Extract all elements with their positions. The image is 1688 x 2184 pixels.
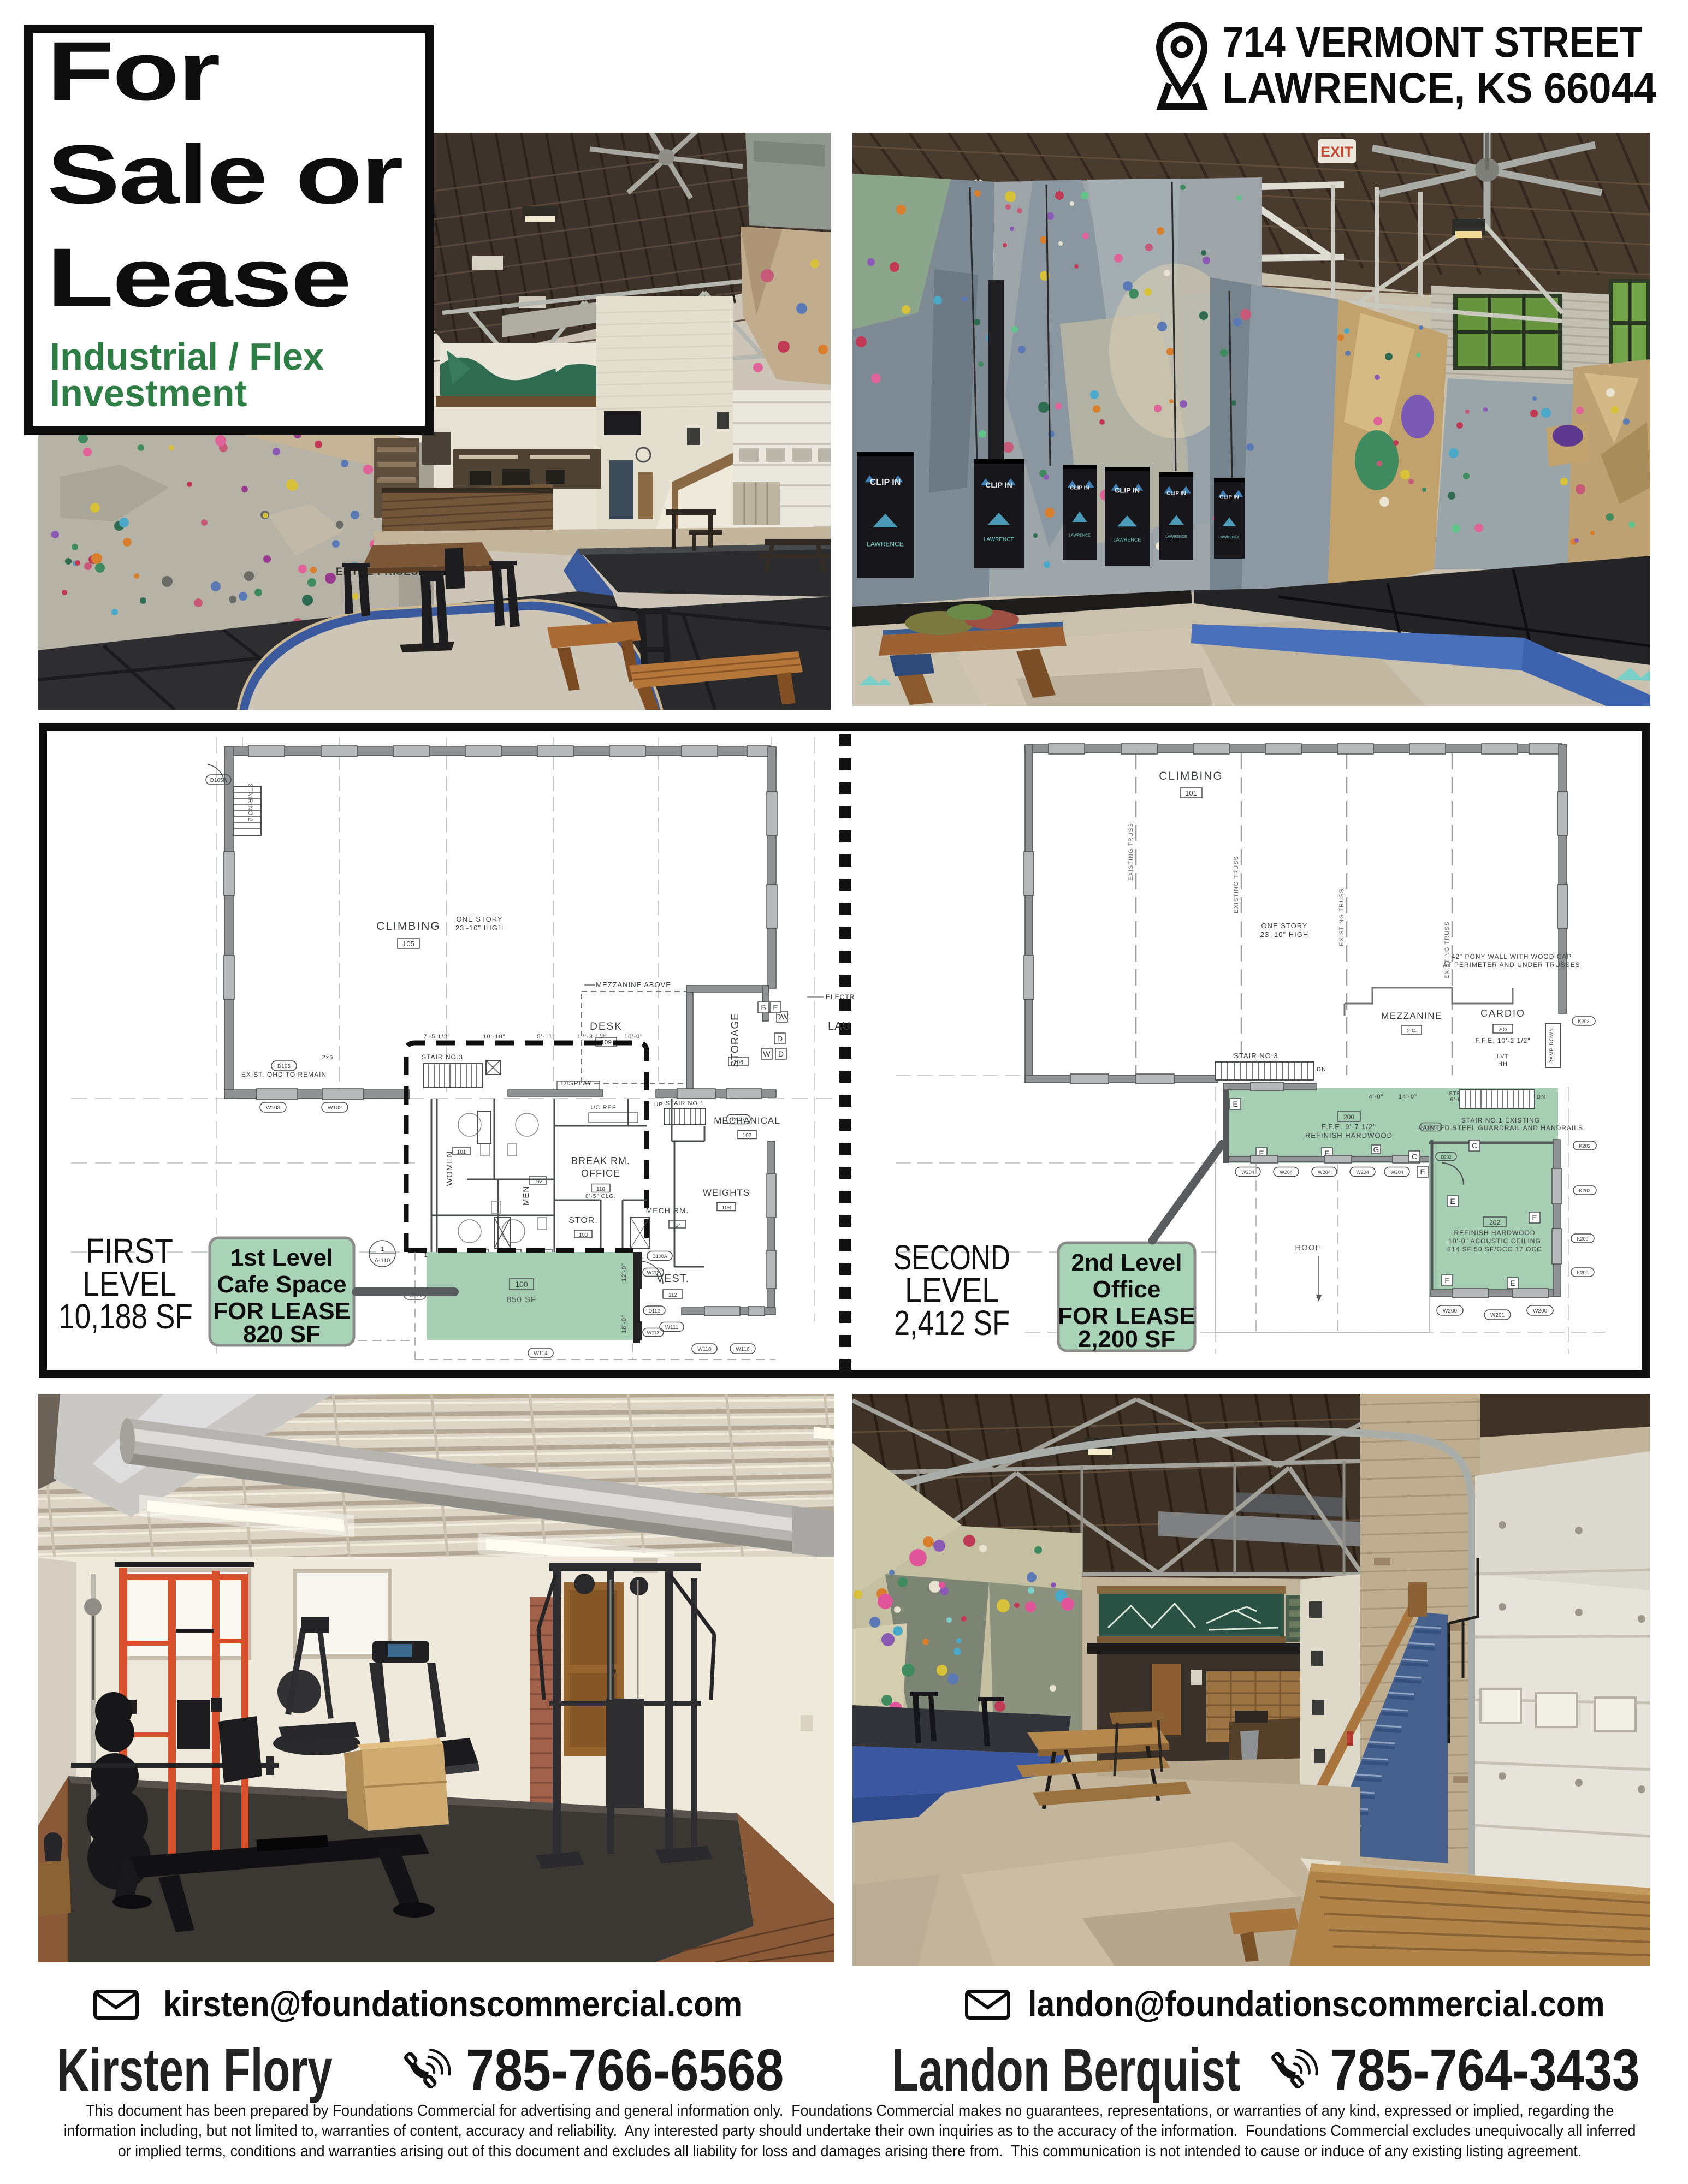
svg-text:MEZZANINE: MEZZANINE [1381, 1011, 1442, 1021]
svg-text:ONE STORY: ONE STORY [1261, 922, 1307, 930]
svg-text:10,188 SF: 10,188 SF [58, 1297, 193, 1336]
svg-text:100: 100 [515, 1280, 528, 1289]
svg-text:200: 200 [1343, 1113, 1354, 1121]
svg-text:W102: W102 [328, 1105, 342, 1111]
svg-text:W204: W204 [1241, 1170, 1254, 1175]
svg-text:REFINISH HARDWOOD: REFINISH HARDWOOD [1305, 1131, 1393, 1140]
svg-text:101: 101 [457, 1149, 466, 1155]
svg-text:EXIT: EXIT [1320, 144, 1354, 160]
svg-text:WOMEN: WOMEN [445, 1151, 454, 1186]
svg-text:HH: HH [1498, 1061, 1508, 1067]
svg-text:D205: D205 [1425, 1125, 1437, 1130]
svg-text:E: E [1420, 1167, 1425, 1176]
svg-text:CLIP IN: CLIP IN [1166, 491, 1186, 497]
svg-text:W204: W204 [1318, 1170, 1331, 1175]
svg-text:10'-0" ACOUSTIC CEILING: 10'-0" ACOUSTIC CEILING [1448, 1237, 1541, 1245]
svg-text:K202: K202 [1579, 1188, 1590, 1194]
svg-text:WEIGHTS: WEIGHTS [703, 1188, 750, 1198]
svg-text:101: 101 [1185, 789, 1197, 797]
svg-text:850 SF: 850 SF [507, 1295, 536, 1304]
svg-text:B: B [761, 1003, 766, 1012]
svg-text:42" PONY WALL WITH WOOD CAP: 42" PONY WALL WITH WOOD CAP [1452, 953, 1572, 960]
svg-text:LAWRENCE: LAWRENCE [1165, 535, 1187, 539]
svg-text:PAINTED STEEL GUARDRAIL AND HA: PAINTED STEEL GUARDRAIL AND HANDRAILS [1418, 1124, 1583, 1132]
svg-text:202: 202 [1489, 1219, 1500, 1226]
svg-text:1st Level: 1st Level [230, 1244, 333, 1271]
svg-text:2,412 SF: 2,412 SF [894, 1303, 1010, 1343]
svg-text:CLIP IN: CLIP IN [985, 480, 1012, 489]
svg-text:D: D [778, 1049, 784, 1058]
svg-text:W110: W110 [736, 1346, 750, 1352]
svg-text:W112: W112 [647, 1270, 660, 1275]
svg-text:W: W [763, 1049, 771, 1058]
svg-text:MEZZANINE ABOVE: MEZZANINE ABOVE [596, 981, 671, 989]
svg-text:E: E [1233, 1100, 1237, 1108]
svg-text:E: E [1444, 1276, 1449, 1285]
svg-text:MECH RM.: MECH RM. [646, 1206, 689, 1215]
svg-text:106: 106 [733, 1059, 743, 1066]
svg-text:CLIMBING: CLIMBING [1159, 770, 1223, 782]
svg-text:103: 103 [579, 1232, 588, 1238]
svg-text:LAWRENCE: LAWRENCE [867, 541, 904, 548]
svg-text:F.F.E. 10'-2 1/2": F.F.E. 10'-2 1/2" [1476, 1037, 1531, 1044]
svg-text:UP: UP [654, 1102, 663, 1108]
svg-text:RAMP DOWN: RAMP DOWN [1549, 1028, 1554, 1064]
svg-text:EXISTING TRUSS: EXISTING TRUSS [1233, 856, 1240, 913]
svg-text:W201: W201 [1490, 1313, 1505, 1319]
svg-text:EXISTING TRUSS: EXISTING TRUSS [1128, 823, 1134, 880]
svg-text:ONE STORY: ONE STORY [456, 915, 502, 923]
svg-text:8'-5" CLG.: 8'-5" CLG. [585, 1194, 616, 1200]
svg-text:STOR.: STOR. [568, 1216, 598, 1225]
svg-text:W204: W204 [1356, 1170, 1369, 1175]
svg-text:D202: D202 [1441, 1155, 1452, 1160]
svg-text:AT PERIMETER AND UNDER TRUSSES: AT PERIMETER AND UNDER TRUSSES [1443, 961, 1580, 969]
svg-text:W103: W103 [266, 1105, 281, 1111]
svg-text:105: 105 [402, 940, 414, 948]
svg-text:10'-0": 10'-0" [624, 1034, 643, 1040]
svg-text:EXIST. OHD TO REMAIN: EXIST. OHD TO REMAIN [241, 1071, 327, 1078]
svg-text:W204: W204 [1390, 1170, 1403, 1175]
svg-text:OFFICE: OFFICE [581, 1168, 620, 1179]
svg-text:CLIP IN: CLIP IN [1219, 494, 1239, 500]
svg-text:E: E [1532, 1213, 1537, 1222]
svg-text:W114: W114 [534, 1351, 548, 1357]
svg-text:CARDIO: CARDIO [1480, 1008, 1525, 1019]
svg-text:107: 107 [743, 1133, 752, 1139]
svg-text:204: 204 [1407, 1028, 1417, 1034]
svg-text:D100A: D100A [652, 1254, 667, 1259]
svg-text:LAU: LAU [828, 1020, 851, 1032]
svg-text:12'-9": 12'-9" [621, 1263, 627, 1281]
svg-text:LAWRENCE: LAWRENCE [1218, 536, 1240, 539]
svg-text:ROOF: ROOF [1295, 1243, 1320, 1253]
svg-text:W204: W204 [1280, 1170, 1293, 1175]
svg-text:2,200 SF: 2,200 SF [1078, 1326, 1176, 1352]
svg-text:W111: W111 [665, 1325, 679, 1331]
svg-text:BREAK RM.: BREAK RM. [571, 1155, 630, 1166]
svg-text:814 SF 50 SF/OCC 17 OCC: 814 SF 50 SF/OCC 17 OCC [1447, 1245, 1542, 1253]
svg-text:STAIR NO.3: STAIR NO.3 [422, 1053, 463, 1061]
svg-text:E: E [1450, 1197, 1455, 1206]
svg-text:REFINISH HARDWOOD: REFINISH HARDWOOD [1454, 1229, 1536, 1237]
svg-text:CLIP IN: CLIP IN [870, 478, 901, 487]
svg-text:D105A: D105A [210, 778, 227, 784]
svg-text:EXISTING TRUSS: EXISTING TRUSS [1338, 888, 1345, 946]
svg-text:C: C [1412, 1152, 1417, 1161]
svg-text:E: E [773, 1003, 778, 1012]
svg-text:K200: K200 [1577, 1236, 1588, 1242]
svg-text:DW: DW [775, 1012, 789, 1021]
svg-text:LAWRENCE: LAWRENCE [984, 537, 1015, 543]
svg-text:MECHANICAL: MECHANICAL [714, 1115, 780, 1126]
svg-text:14'-0": 14'-0" [1399, 1094, 1417, 1100]
svg-text:STAIR NO.1 EXISTING: STAIR NO.1 EXISTING [1461, 1117, 1540, 1124]
svg-text:LAWRENCE: LAWRENCE [1114, 537, 1141, 543]
svg-text:ELECTR: ELECTR [826, 993, 855, 1001]
svg-text:2x6: 2x6 [322, 1054, 334, 1061]
svg-text:D: D [777, 1034, 783, 1043]
svg-text:203: 203 [1499, 1027, 1508, 1033]
svg-text:DN: DN [1317, 1066, 1326, 1073]
svg-text:W200: W200 [1533, 1308, 1548, 1314]
svg-text:102: 102 [534, 1179, 543, 1185]
svg-text:DESK: DESK [590, 1021, 623, 1032]
svg-text:W113: W113 [647, 1330, 660, 1336]
svg-text:EXISTING TRUSS: EXISTING TRUSS [1444, 921, 1450, 978]
svg-text:2nd Level: 2nd Level [1071, 1249, 1182, 1276]
svg-text:23'-10" HIGH: 23'-10" HIGH [1260, 930, 1308, 939]
svg-text:K200: K200 [1577, 1270, 1588, 1275]
svg-text:23'-10" HIGH: 23'-10" HIGH [455, 924, 504, 932]
svg-text:CLIP IN: CLIP IN [1070, 485, 1089, 491]
svg-text:A-110: A-110 [375, 1257, 390, 1264]
svg-text:12'-3 1/2": 12'-3 1/2" [577, 1034, 608, 1040]
svg-text:Cafe Space: Cafe Space [217, 1271, 346, 1298]
svg-text:C: C [1472, 1141, 1477, 1150]
svg-text:W200: W200 [1443, 1308, 1458, 1314]
svg-text:7'-5 1/2": 7'-5 1/2" [423, 1034, 450, 1040]
svg-text:K203: K203 [1578, 1019, 1589, 1024]
svg-text:STAIR NO.2: STAIR NO.2 [247, 784, 253, 822]
svg-text:10'-10": 10'-10" [483, 1034, 505, 1040]
svg-text:D105: D105 [277, 1064, 291, 1070]
svg-text:CLIMBING: CLIMBING [376, 920, 441, 933]
svg-text:D112: D112 [649, 1308, 660, 1314]
svg-text:E: E [1510, 1279, 1515, 1287]
svg-text:5'-11": 5'-11" [537, 1034, 555, 1040]
svg-text:DISPLAY: DISPLAY [561, 1079, 593, 1087]
svg-text:K202: K202 [1579, 1143, 1590, 1149]
svg-text:Office: Office [1093, 1276, 1161, 1303]
svg-text:18'-0": 18'-0" [621, 1315, 627, 1333]
svg-text:STAIR NO.3: STAIR NO.3 [1234, 1052, 1278, 1060]
svg-text:110: 110 [596, 1186, 605, 1192]
svg-text:F.F.E. 9'-7 1/2": F.F.E. 9'-7 1/2" [1322, 1123, 1376, 1131]
svg-text:LVT: LVT [1497, 1053, 1509, 1060]
svg-text:CLIP IN: CLIP IN [1115, 486, 1140, 494]
svg-text:UC REF: UC REF [591, 1105, 617, 1111]
svg-text:4'-0": 4'-0" [1369, 1094, 1384, 1100]
svg-text:112: 112 [668, 1292, 677, 1298]
svg-text:G: G [1373, 1145, 1379, 1154]
svg-text:MEN: MEN [522, 1186, 531, 1206]
svg-text:1: 1 [381, 1246, 384, 1253]
svg-text:LAWRENCE: LAWRENCE [1069, 533, 1091, 537]
svg-text:DN: DN [1537, 1094, 1545, 1100]
svg-text:820 SF: 820 SF [243, 1321, 321, 1348]
svg-text:W110: W110 [697, 1346, 712, 1352]
svg-text:108: 108 [722, 1205, 731, 1211]
